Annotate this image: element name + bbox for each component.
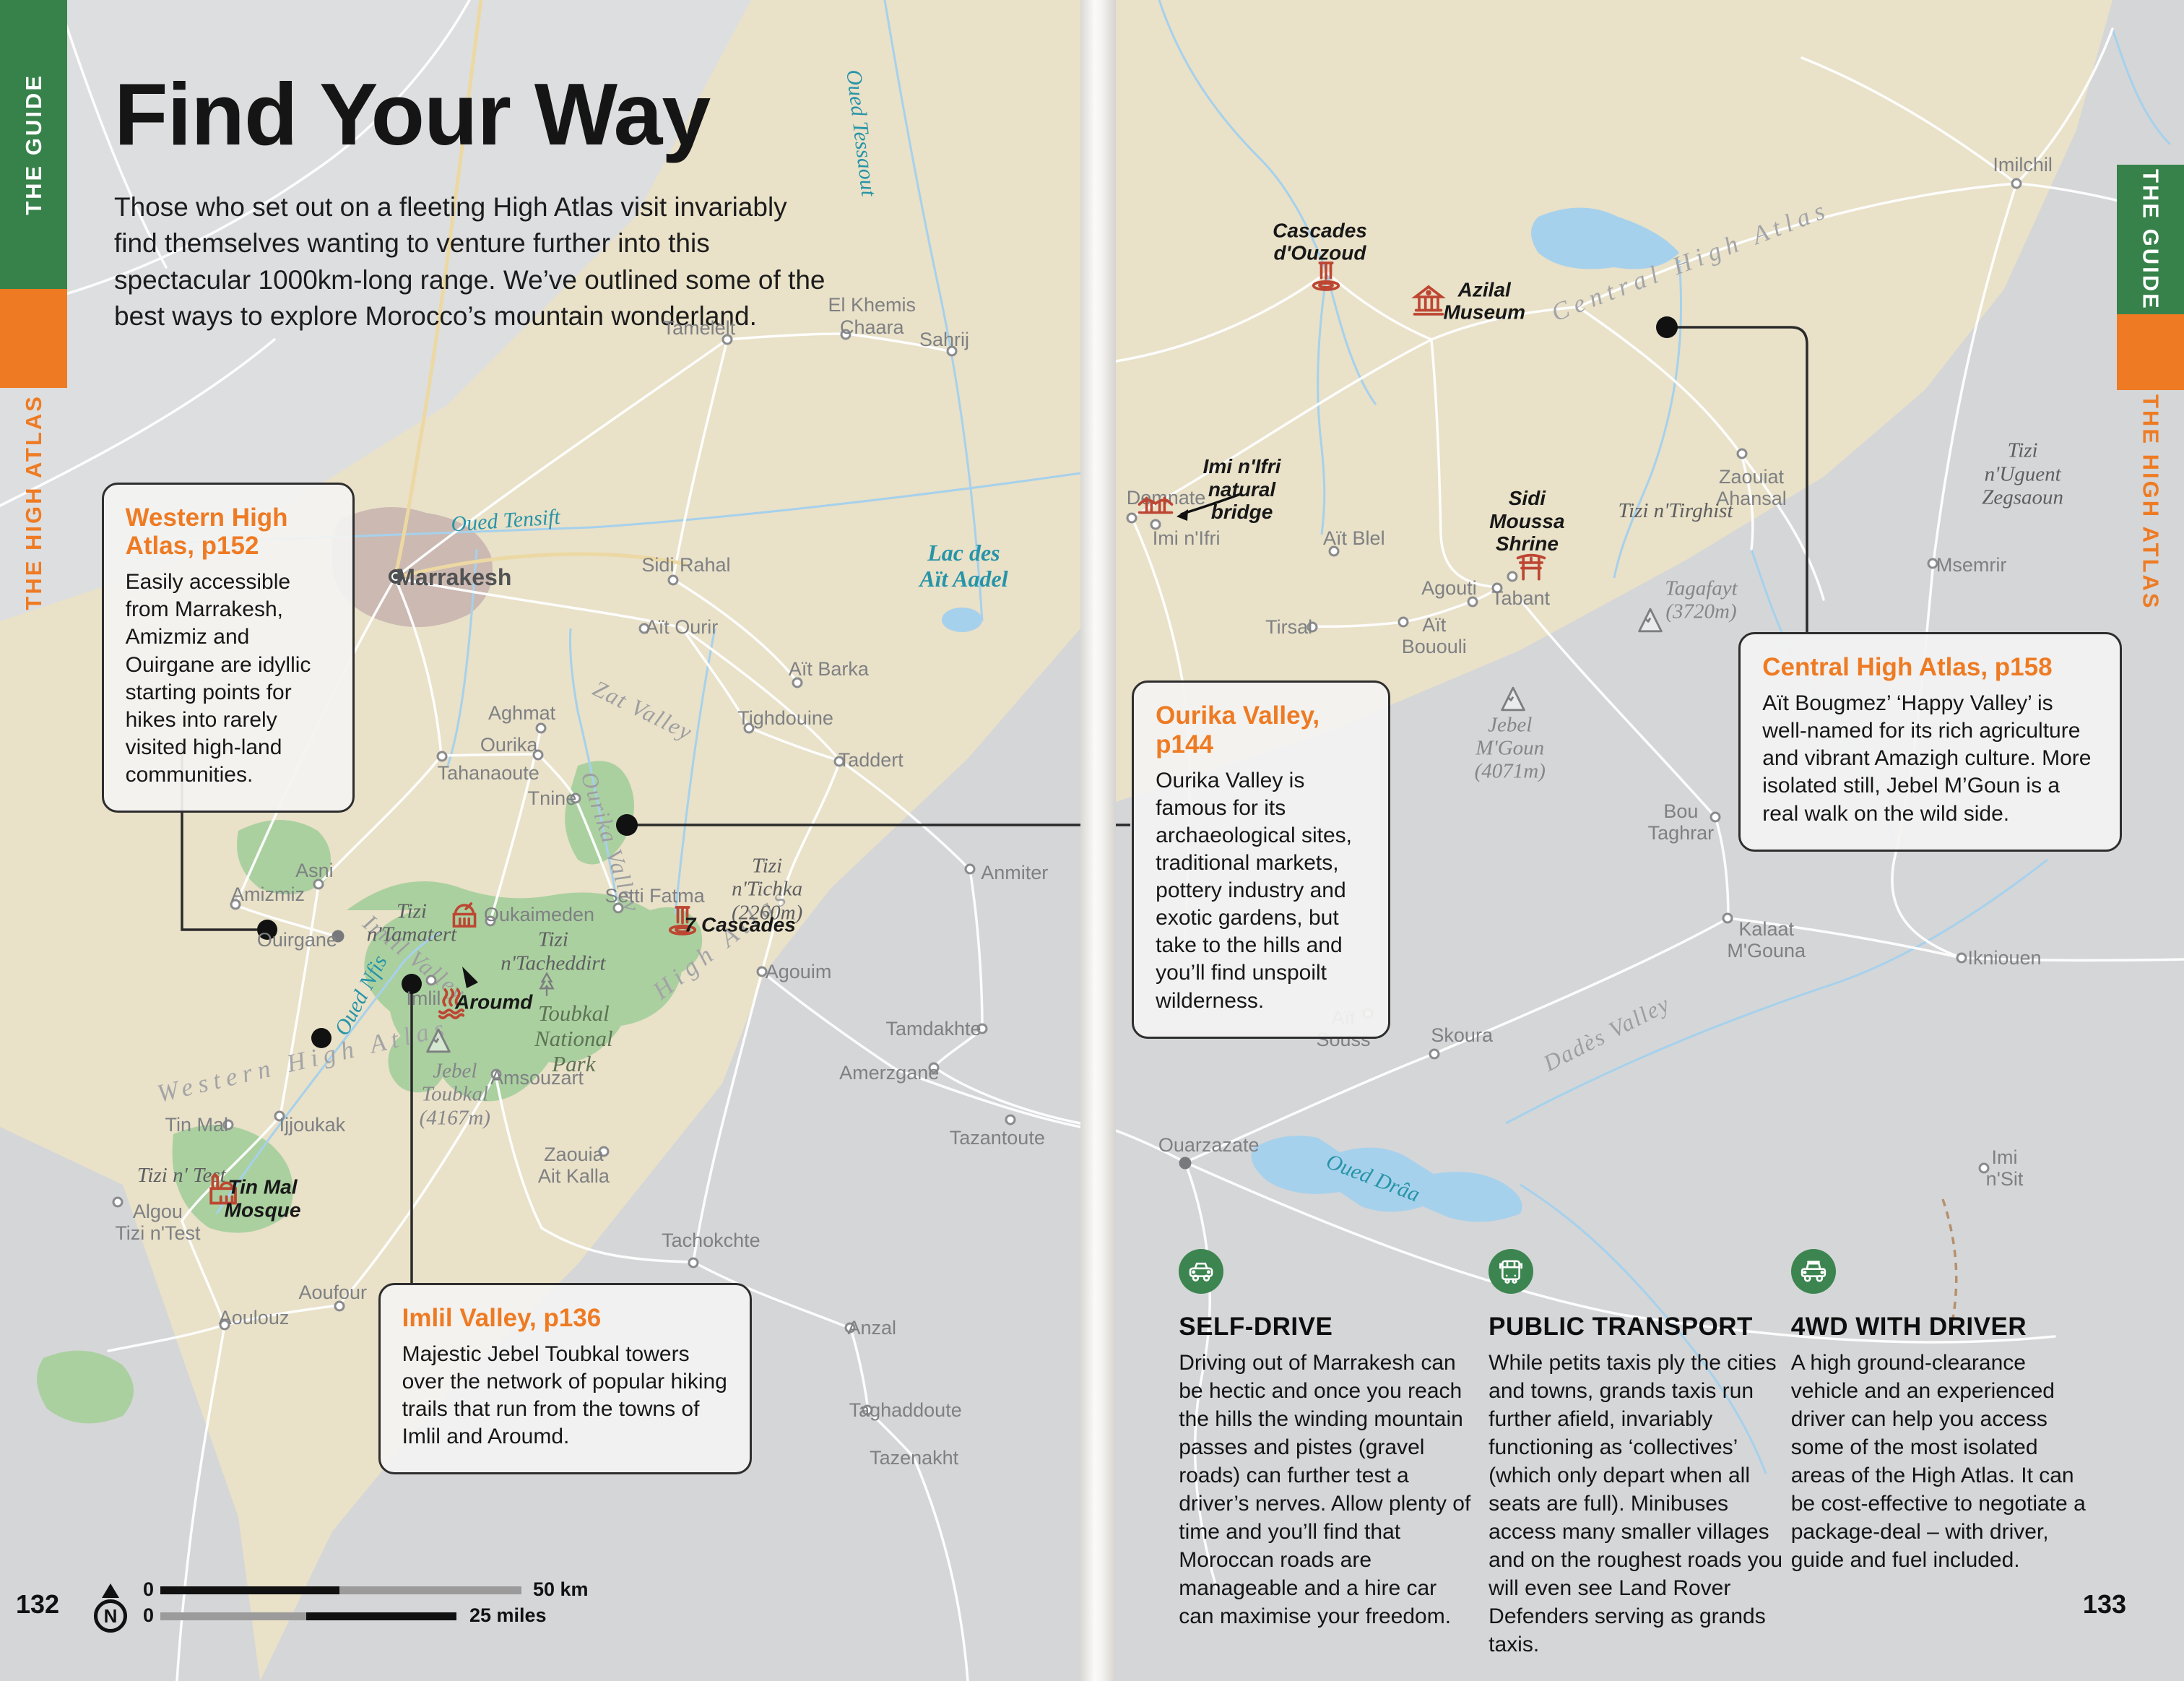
town-marker [1307, 621, 1318, 632]
town-marker [1127, 512, 1137, 523]
compass-north-icon: N [92, 1583, 129, 1633]
town-marker [1150, 519, 1161, 530]
bus-icon [1488, 1249, 1533, 1294]
town-marker [222, 1119, 233, 1130]
town-marker [965, 864, 976, 875]
headline-block: Find Your Way Those who set out on a fle… [114, 64, 880, 334]
town-marker [841, 329, 851, 340]
callout-title: Imlil Valley, p136 [402, 1304, 729, 1332]
callout-ourika-valley: Ourika Valley, p144 Ourika Valley is fam… [1132, 680, 1390, 1038]
page-number-left: 132 [16, 1589, 59, 1620]
town-marker [332, 930, 344, 943]
scale-zero-km: 0 [143, 1578, 154, 1601]
transport-public-transport: PUBLIC TRANSPORT While petits taxis ply … [1488, 1249, 1783, 1659]
callout-body: Majestic Jebel Toubkal towers over the n… [402, 1341, 729, 1451]
town-marker [1979, 1163, 1990, 1174]
callout-title: Western High Atlas, p152 [126, 504, 331, 560]
town-marker [1429, 1049, 1439, 1060]
transport-title: PUBLIC TRANSPORT [1488, 1313, 1783, 1341]
town-marker [668, 574, 679, 585]
scale-miles-gray [160, 1612, 306, 1620]
town-marker [334, 1301, 344, 1312]
town-marker [1709, 811, 1720, 822]
town-marker [976, 1024, 987, 1034]
town-marker [2011, 178, 2021, 189]
town-marker [230, 899, 241, 909]
tab-the-high-atlas-label: THE HIGH ATLAS [2138, 394, 2164, 610]
town-marker [274, 1111, 285, 1122]
scale-km-label: 50 km [533, 1578, 589, 1601]
scale-miles-black [306, 1612, 456, 1620]
transport-self-drive: SELF-DRIVE Driving out of Marrakesh can … [1179, 1249, 1473, 1630]
callout-central-high-atlas: Central High Atlas, p158 Aït Bougmez’ ‘H… [1738, 632, 2122, 852]
tab-the-guide-label: THE GUIDE [2138, 169, 2164, 311]
town-marker [756, 967, 767, 977]
town-marker [721, 334, 732, 345]
town-marker [612, 902, 623, 913]
tab-the-high-atlas-label: THE HIGH ATLAS [21, 394, 47, 610]
tab-the-high-atlas: THE HIGH ATLAS [0, 394, 67, 610]
town-marker [389, 569, 403, 584]
tab-orange-block [2117, 314, 2184, 390]
town-marker [490, 1068, 501, 1079]
town-marker [571, 793, 581, 804]
town-marker [313, 879, 324, 890]
transport-title: 4WD WITH DRIVER [1791, 1313, 2086, 1341]
town-marker [1492, 583, 1503, 594]
town-marker [536, 722, 547, 733]
scale-zero-miles: 0 [143, 1604, 154, 1627]
left-page: THE GUIDE THE HIGH ATLAS Find Your Way T… [0, 0, 1080, 1681]
tab-the-guide: THE GUIDE [2117, 165, 2184, 314]
town-marker [425, 975, 436, 985]
transport-body: While petits taxis ply the cities and to… [1488, 1349, 1783, 1659]
transport-title: SELF-DRIVE [1179, 1313, 1473, 1341]
lake-ait-aadel [942, 608, 982, 632]
town-marker [928, 1062, 939, 1073]
town-marker [1328, 546, 1339, 557]
guidebook-spread: { "colors": { "orange":"#ee7b23", "green… [0, 0, 2184, 1681]
transport-body: Driving out of Marrakesh can be hectic a… [1179, 1349, 1473, 1630]
tab-the-guide-label: THE GUIDE [21, 74, 47, 215]
right-page: THE GUIDE THE HIGH ATLAS Imilchil Cascad… [1116, 0, 2184, 1681]
town-marker [1397, 616, 1408, 627]
page-number-right: 133 [2083, 1589, 2126, 1620]
car-icon [1179, 1249, 1223, 1294]
compass-needle [102, 1583, 119, 1598]
town-marker [638, 623, 649, 634]
town-marker [533, 749, 544, 760]
callout-western-high-atlas: Western High Atlas, p152 Easily accessib… [102, 483, 355, 813]
callout-imlil-valley: Imlil Valley, p136 Majestic Jebel Toubka… [378, 1283, 753, 1475]
callout-body: Ourika Valley is famous for its archaeol… [1156, 767, 1366, 1015]
page-gutter [1080, 0, 1116, 1681]
scale-miles-label: 25 miles [469, 1604, 547, 1627]
town-marker [1722, 912, 1733, 923]
town-marker [1956, 953, 1967, 964]
callout-title: Ourika Valley, p144 [1156, 701, 1366, 758]
callout-title: Central High Atlas, p158 [1762, 653, 2098, 681]
callout-body: Easily accessible from Marrakesh, Amizmi… [126, 569, 331, 789]
town-marker [1005, 1114, 1015, 1125]
tab-the-guide: THE GUIDE [0, 0, 67, 289]
tab-the-high-atlas: THE HIGH ATLAS [2117, 394, 2184, 610]
town-marker [485, 916, 496, 927]
callout-body: Aït Bougmez’ ‘Happy Valley’ is well-name… [1762, 690, 2098, 827]
town-marker [845, 1323, 856, 1334]
town-marker [1507, 571, 1517, 582]
transport-body: A high ground-clearance vehicle and an e… [1791, 1349, 2086, 1574]
town-marker [792, 677, 803, 688]
town-marker [862, 1405, 873, 1416]
compass-circle: N [94, 1599, 127, 1633]
town-marker [436, 751, 447, 762]
scale-km-black [160, 1586, 339, 1594]
town-marker [220, 1319, 230, 1330]
scale-km-gray [339, 1586, 521, 1594]
town-marker [834, 756, 845, 767]
town-marker [599, 1146, 610, 1157]
town-marker [113, 1196, 123, 1207]
transport-4wd: 4WD WITH DRIVER A high ground-clearance … [1791, 1249, 2086, 1574]
intro-paragraph: Those who set out on a fleeting High Atl… [114, 189, 836, 334]
town-marker [688, 1257, 699, 1268]
tab-orange-block [0, 289, 67, 388]
town-marker [1928, 558, 1938, 569]
town-marker [1179, 1157, 1192, 1170]
town-marker [1736, 449, 1747, 459]
town-marker [1467, 597, 1478, 608]
page-title: Find Your Way [114, 64, 880, 165]
town-marker [946, 346, 957, 357]
4wd-icon [1791, 1249, 1836, 1294]
town-marker [743, 722, 754, 733]
